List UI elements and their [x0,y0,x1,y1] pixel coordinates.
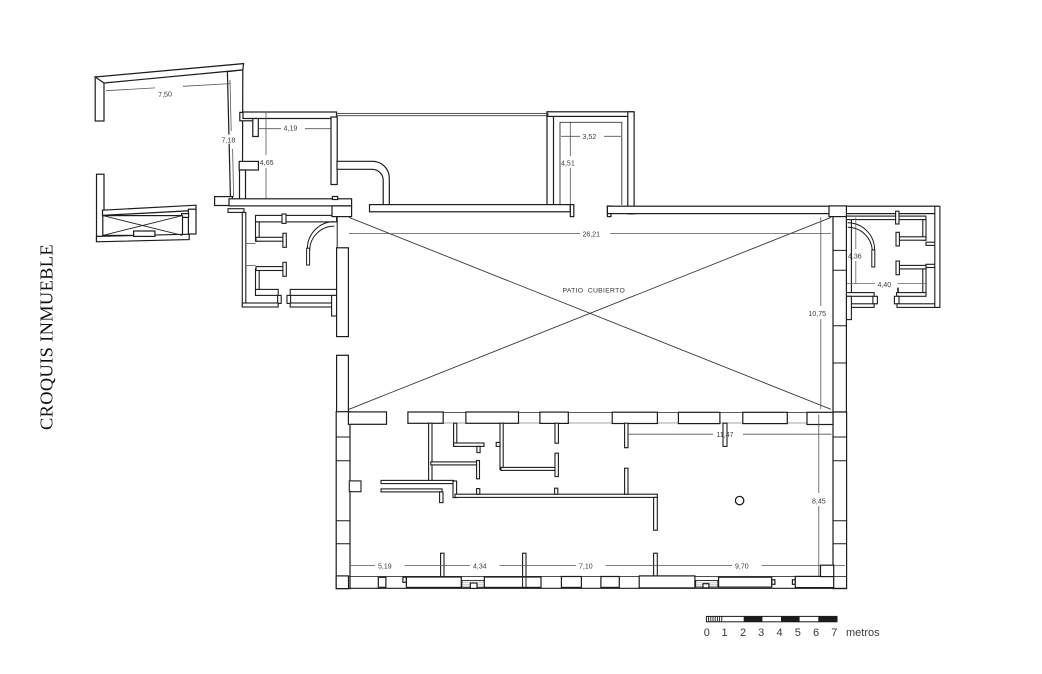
svg-text:2: 2 [740,627,746,639]
svg-text:8,45: 8,45 [812,499,826,506]
svg-text:7,50: 7,50 [158,90,172,99]
svg-text:9,70: 9,70 [735,563,749,570]
svg-text:PATIO CUBIERTO: PATIO CUBIERTO [563,287,626,294]
svg-text:4,51: 4,51 [561,159,575,167]
svg-text:4: 4 [776,627,782,639]
svg-text:26,21: 26,21 [583,232,601,239]
svg-text:metros: metros [846,627,880,639]
svg-text:4,65: 4,65 [260,159,274,167]
svg-text:7,10: 7,10 [579,563,593,570]
svg-text:4,19: 4,19 [284,125,298,133]
svg-text:CROQUIS INMUEBLE: CROQUIS INMUEBLE [37,244,57,430]
svg-text:5: 5 [795,627,801,639]
svg-text:4,40: 4,40 [878,282,892,289]
svg-text:0: 0 [704,627,710,639]
svg-text:11,47: 11,47 [717,432,734,439]
svg-text:7,18: 7,18 [222,136,236,144]
svg-text:1: 1 [722,627,728,639]
svg-text:7: 7 [831,627,837,639]
svg-text:4,36: 4,36 [848,254,862,261]
svg-text:5,19: 5,19 [378,563,392,570]
svg-text:10,75: 10,75 [809,311,827,318]
svg-text:3,52: 3,52 [583,133,597,141]
svg-text:6: 6 [813,627,819,639]
svg-text:4,34: 4,34 [473,563,487,570]
svg-text:3: 3 [758,627,764,639]
